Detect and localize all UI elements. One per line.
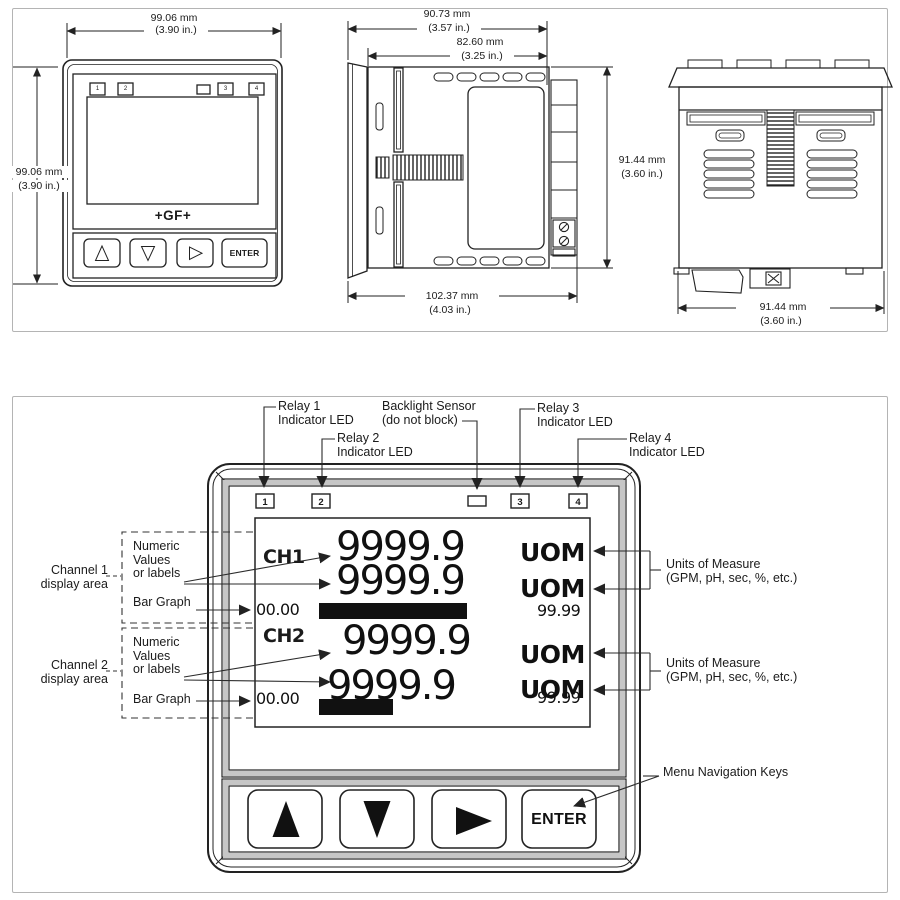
callout-line: Channel 1	[30, 564, 108, 578]
ch1-uom-1: UOM	[520, 540, 585, 565]
callout-line: Units of Measure	[666, 558, 797, 572]
rear-width-dim-mm: 91.44 mm	[736, 301, 830, 313]
ch1-bar-max: 99.99	[537, 603, 580, 619]
front-width-dim-mm: 99.06 mm	[114, 12, 234, 24]
callout-line: display area	[30, 673, 108, 687]
numeric-values-callout-ch2: Numeric Values or labels	[133, 636, 180, 677]
callout-line: Indicator LED	[629, 446, 705, 460]
right-arrow-icon	[190, 247, 203, 260]
up-arrow-icon	[96, 246, 109, 261]
callout-line: Units of Measure	[666, 657, 797, 671]
front-relay-led-icons	[90, 83, 264, 95]
down-arrow-icon	[364, 801, 391, 838]
heatsink-ribs-small	[376, 157, 389, 178]
callout-line: display area	[30, 578, 108, 592]
front-led-2: 2	[118, 86, 133, 92]
relay-led-icons	[256, 494, 587, 508]
callout-line: Relay 4	[629, 432, 705, 446]
ch2-value-1: 9999.9	[342, 621, 470, 661]
backlight-sensor-icon	[468, 496, 486, 506]
side-height-dim-in: (3.60 in.)	[613, 168, 671, 180]
callout-line: (do not block)	[382, 414, 476, 428]
callout-line: Indicator LED	[278, 414, 354, 428]
ch2-label: CH2	[263, 627, 305, 646]
ch1-value-2: 9999.9	[336, 561, 464, 601]
front-led-4: 4	[249, 86, 264, 92]
callout-line: Backlight Sensor	[382, 400, 476, 414]
enter-key-label: ENTER	[522, 812, 596, 828]
right-arrow-icon	[456, 807, 492, 835]
ch2-value-2: 9999.9	[327, 666, 455, 706]
ch1-bar-graph	[319, 603, 467, 619]
channel2-area-callout: Channel 2 display area	[30, 659, 108, 686]
relay2-led: 2	[312, 498, 330, 508]
ch1-uom-2: UOM	[520, 576, 585, 601]
backlight-sensor-callout: Backlight Sensor (do not block)	[382, 400, 476, 427]
front-height-dim-in: (3.90 in.)	[8, 180, 70, 192]
ch1-label: CH1	[263, 548, 305, 567]
callout-line: or labels	[133, 663, 180, 677]
relay3-led: 3	[511, 498, 529, 508]
callout-line: Indicator LED	[337, 446, 413, 460]
bar-graph-callout-ch1: Bar Graph	[133, 596, 191, 610]
menu-navigation-keys-callout: Menu Navigation Keys	[663, 766, 788, 780]
callout-line: Relay 1	[278, 400, 354, 414]
side-depth-dim-in: (4.03 in.)	[420, 304, 480, 316]
front-view-dimensions	[13, 23, 281, 284]
units-of-measure-callout-ch2: Units of Measure (GPM, pH, sec, %, etc.)	[666, 657, 797, 684]
ch1-bar-min: 00.00	[256, 602, 299, 618]
bar-graph-callout-ch2: Bar Graph	[133, 693, 191, 707]
relay1-callout: Relay 1 Indicator LED	[278, 400, 354, 427]
callout-line: Values	[133, 554, 180, 568]
side-height-dim-mm: 91.44 mm	[613, 154, 671, 166]
page: 99.06 mm (3.90 in.) 99.06 mm (3.90 in.) …	[0, 0, 900, 900]
ch2-bar-min: 00.00	[256, 691, 299, 707]
relay4-callout: Relay 4 Indicator LED	[629, 432, 705, 459]
front-width-dim-in: (3.90 in.)	[144, 24, 208, 36]
ch2-uom-2: UOM	[520, 677, 585, 702]
units-of-measure-callout-ch1: Units of Measure (GPM, pH, sec, %, etc.)	[666, 558, 797, 585]
callout-line: Values	[133, 650, 180, 664]
side-depth-dim-mm: 102.37 mm	[405, 290, 499, 302]
front-led-3: 3	[218, 86, 233, 92]
front-led-1: 1	[90, 86, 105, 92]
ch2-uom-1: UOM	[520, 642, 585, 667]
gf-logo: +GF+	[143, 209, 203, 223]
callout-line: or labels	[133, 567, 180, 581]
callout-line: Channel 2	[30, 659, 108, 673]
front-height-dim-mm: 99.06 mm	[8, 166, 70, 178]
callout-line: Relay 2	[337, 432, 413, 446]
up-arrow-icon	[273, 801, 300, 837]
heatsink-ribs	[393, 155, 463, 180]
callout-line: Relay 3	[537, 402, 613, 416]
terminal-blocks	[551, 80, 577, 256]
side-bezel-dim-in: (3.57 in.)	[417, 22, 481, 34]
relay2-callout: Relay 2 Indicator LED	[337, 432, 413, 459]
relay3-callout: Relay 3 Indicator LED	[537, 402, 613, 429]
callout-line: (GPM, pH, sec, %, etc.)	[666, 572, 797, 586]
relay1-led: 1	[256, 498, 274, 508]
rear-view-drawing	[669, 60, 892, 293]
side-case-dim-in: (3.25 in.)	[450, 50, 514, 62]
callout-line: Indicator LED	[537, 416, 613, 430]
callout-line: Numeric	[133, 540, 180, 554]
relay4-led: 4	[569, 498, 587, 508]
callout-line: Numeric	[133, 636, 180, 650]
down-arrow-icon	[142, 247, 155, 261]
numeric-values-callout-ch1: Numeric Values or labels	[133, 540, 180, 581]
rear-heatsink-ribs	[767, 110, 794, 186]
side-view-drawing	[348, 63, 577, 278]
front-enter-key-label: ENTER	[222, 249, 267, 258]
channel1-area-callout: Channel 1 display area	[30, 564, 108, 591]
rear-width-dim-in: (3.60 in.)	[751, 315, 811, 327]
side-bezel-dim-mm: 90.73 mm	[387, 8, 507, 20]
callout-line: (GPM, pH, sec, %, etc.)	[666, 671, 797, 685]
side-case-dim-mm: 82.60 mm	[420, 36, 540, 48]
rear-connectors	[674, 268, 863, 293]
